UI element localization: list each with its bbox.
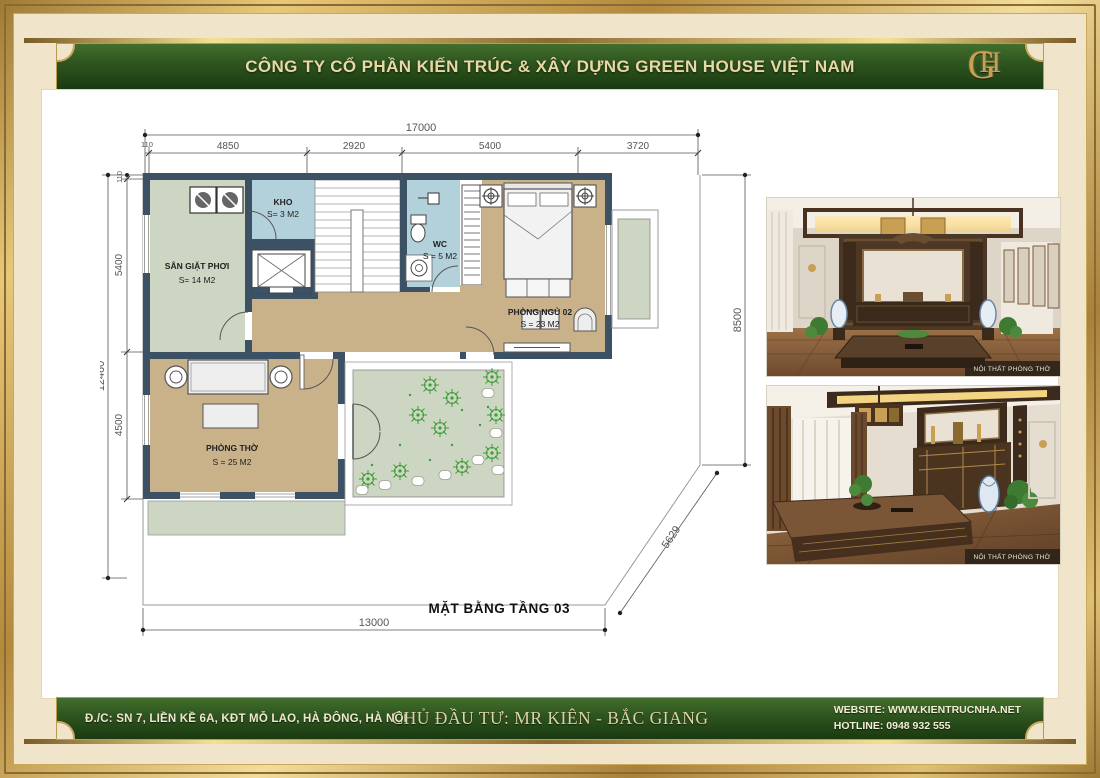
dim-left-seg: 110: [115, 171, 124, 183]
logo-letter-h: H: [979, 46, 1001, 79]
dim-top-seg: 5400: [479, 141, 502, 152]
label-worship-name: PHÒNG THỜ: [206, 442, 259, 453]
dim-bottom: 13000: [359, 617, 390, 629]
label-wc-name: WC: [433, 239, 447, 249]
altar-table: [188, 360, 268, 394]
dim-top-seg: 110: [141, 140, 153, 149]
label-laundry-name: SÂN GIẶT PHƠI: [165, 260, 229, 271]
armchair: [574, 308, 596, 331]
label-storage-area: S= 3 M2: [267, 209, 299, 219]
label-bedroom-area: S = 23 M2: [521, 319, 560, 329]
render-photo-worship-room-2: NỘI THẤT PHÒNG THỜ: [767, 386, 1060, 564]
stairs: [315, 180, 400, 292]
contact-info: WEBSITE: WWW.KIENTRUCNHA.NET HOTLINE: 09…: [834, 698, 1021, 739]
bed-bench: [506, 279, 570, 297]
dim-top-seg: 4850: [217, 141, 240, 152]
floor-plan-svg: 17000 110 4850 2920 5400 3720 12460 110 …: [100, 115, 760, 655]
dim-top-total: 17000: [406, 122, 437, 134]
elevator: [245, 244, 318, 299]
floor-plan: 17000 110 4850 2920 5400 3720 12460 110 …: [100, 115, 760, 660]
label-laundry-area: S= 14 M2: [179, 275, 216, 285]
balcony: [612, 210, 658, 328]
room-bedroom: [460, 173, 612, 359]
website: WEBSITE: WWW.KIENTRUCNHA.NET: [834, 703, 1021, 718]
render-photo-2-art: NỘI THẤT PHÒNG THỜ: [767, 386, 1060, 564]
plan-title: MẶT BẰNG TẦNG 03: [428, 601, 570, 616]
hall-floor: [245, 292, 460, 352]
drawing-sheet: CÔNG TY CỔ PHẦN KIẾN TRÚC & XÂY DỰNG GRE…: [0, 0, 1100, 778]
terrace-garden: [345, 362, 512, 505]
wardrobe-louvre: [462, 185, 482, 285]
drawing-canvas: 17000 110 4850 2920 5400 3720 12460 110 …: [41, 89, 1059, 699]
hotline: HOTLINE: 0948 932 555: [834, 719, 1021, 734]
room-worship: [143, 352, 345, 499]
render-photo-1-art: NỘI THẤT PHÒNG THỜ: [767, 198, 1060, 376]
dim-top-seg: 3720: [627, 141, 650, 152]
dim-top-seg: 2920: [343, 141, 366, 152]
dim-left-seg: 5400: [114, 253, 125, 276]
label-wc-area: S = 5 M2: [423, 251, 458, 261]
room-wc: [400, 180, 460, 292]
footer-banner: Đ./C: SN 7, LIỀN KỀ 6A, KĐT MỖ LAO, HÀ Đ…: [56, 697, 1044, 740]
dim-left-seg: 4500: [114, 413, 125, 436]
vase: [165, 366, 187, 388]
big-vase: [979, 476, 999, 512]
bed: [504, 183, 572, 297]
header-banner: CÔNG TY CỔ PHẦN KIẾN TRÚC & XÂY DỰNG GRE…: [56, 43, 1044, 90]
cream-mat: CÔNG TY CỔ PHẦN KIẾN TRÚC & XÂY DỰNG GRE…: [13, 13, 1087, 765]
vase: [270, 366, 292, 388]
dim-right: 8500: [732, 308, 744, 332]
label-storage-name: KHO: [274, 197, 293, 207]
toilet-tank: [411, 215, 426, 224]
dim-left-total: 12460: [100, 361, 107, 392]
label-bedroom-name: PHÒNG NGỦ 02: [508, 306, 573, 317]
render-photo-worship-room-1: NỘI THẤT PHÒNG THỜ: [767, 198, 1060, 376]
label-worship-area: S = 25 M2: [213, 457, 252, 467]
company-logo-gh-monogram: GH: [967, 45, 1001, 85]
dim-diagonal: 5629: [660, 524, 684, 551]
offering-table: [203, 404, 258, 428]
toilet-icon: [411, 224, 425, 242]
company-name: CÔNG TY CỔ PHẦN KIẾN TRÚC & XÂY DỰNG GRE…: [57, 44, 1043, 89]
